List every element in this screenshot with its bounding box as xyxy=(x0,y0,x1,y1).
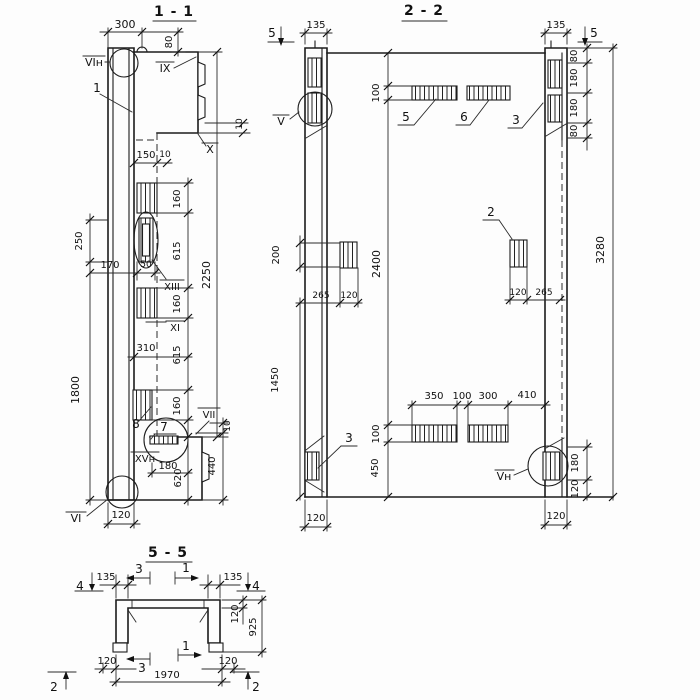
callout-xiii: XIII xyxy=(164,282,180,293)
callout-xi: XI xyxy=(170,323,180,334)
embed-bar-5 xyxy=(412,86,457,100)
dim-chain-80b: 80 xyxy=(569,125,580,138)
dim-top-drop: 80 xyxy=(164,36,175,49)
dim-chain-180a: 180 xyxy=(569,68,580,87)
embed-block-8 xyxy=(133,390,152,420)
callout-panel-1: 1 xyxy=(93,81,101,95)
dim-50: 50 xyxy=(140,260,152,270)
drawing-sheet: 1 - 1 xyxy=(0,0,700,700)
cut-marker-3-top: 3 xyxy=(135,562,143,576)
callout-7: 7 xyxy=(160,420,168,434)
leg-foot xyxy=(113,643,127,652)
embed-block xyxy=(340,242,357,268)
embed-block xyxy=(308,58,322,87)
dim-120-bottom-right: 120 xyxy=(218,656,237,667)
callout-xvn: XVн xyxy=(135,454,155,465)
dim-120-bottom: 120 xyxy=(111,510,130,521)
dim-440: 440 xyxy=(207,456,218,475)
dim-chain-160b: 160 xyxy=(172,294,183,313)
callout-2: 2 xyxy=(487,205,495,219)
embed-bar-6 xyxy=(467,86,510,100)
dim-10b: 10 xyxy=(235,118,245,130)
callout-3-top: 3 xyxy=(512,113,520,127)
dim-120-left: 120 xyxy=(340,291,357,301)
dim-1800: 1800 xyxy=(69,376,82,404)
keyway-notch xyxy=(198,62,205,87)
dim-1970: 1970 xyxy=(154,670,179,681)
section-title: 2 - 2 xyxy=(404,3,444,19)
dim-120-slab: 120 xyxy=(230,604,241,623)
dim-2250: 2250 xyxy=(200,261,213,289)
dim-chain-615a: 615 xyxy=(172,241,183,260)
dim-100-bottom: 100 xyxy=(371,424,382,443)
section-title: 1 - 1 xyxy=(154,4,194,20)
section-5-5: 5 - 5 4 4 135 135 3 1 120 925 120 1970 1… xyxy=(48,545,266,694)
dim-chain-615b: 615 xyxy=(172,345,183,364)
embed-bar xyxy=(412,425,457,442)
callout-vii: VII xyxy=(203,410,216,421)
dim-150: 150 xyxy=(136,150,155,161)
embed-block xyxy=(548,95,562,122)
section-2-2: 2 - 2 5 5 xyxy=(268,3,617,531)
dim-100-span: 100 xyxy=(452,391,471,402)
engineering-drawing: 1 - 1 xyxy=(0,0,700,700)
rib-outline xyxy=(108,48,134,500)
cut-marker-5-left: 5 xyxy=(268,26,276,40)
dim-620: 620 xyxy=(173,468,184,487)
dim-135-right: 135 xyxy=(223,572,242,583)
dim-120-bottom-right: 120 xyxy=(546,511,565,522)
dim-1450: 1450 xyxy=(270,367,281,392)
dim-135-left: 135 xyxy=(96,572,115,583)
dim-135-right: 135 xyxy=(546,20,565,31)
cut-marker-1-top: 1 xyxy=(182,561,190,575)
dim-310: 310 xyxy=(136,343,155,354)
dim-chain-80a: 80 xyxy=(569,50,580,63)
embed-block xyxy=(137,288,157,318)
callout-vin: VIн xyxy=(85,56,103,69)
keyway-notch xyxy=(198,95,205,120)
embed-block-v xyxy=(308,93,322,123)
cut-marker-1-bottom: 1 xyxy=(182,639,190,653)
dim-chain-180b: 180 xyxy=(569,98,580,117)
callout-ix: IX xyxy=(160,62,171,75)
dim-2400: 2400 xyxy=(370,250,383,278)
section-1-1: 1 - 1 xyxy=(66,4,250,528)
dim-120-bottom-left: 120 xyxy=(306,513,325,524)
dim-265-right: 265 xyxy=(535,288,552,298)
dim-410: 410 xyxy=(517,390,536,401)
dim-3280: 3280 xyxy=(594,236,607,264)
callout-vn: Vн xyxy=(497,470,512,483)
dim-180-br: 180 xyxy=(570,453,581,472)
embed-block xyxy=(137,183,157,213)
callout-bar-6: 6 xyxy=(460,110,468,124)
cut-marker-2-left: 2 xyxy=(50,680,58,694)
dim-10c: 10 xyxy=(223,420,233,432)
leg-foot xyxy=(209,643,223,652)
embed-block-2 xyxy=(510,240,527,267)
embed-bar xyxy=(468,425,508,442)
dimension-ticks-55 xyxy=(99,581,266,686)
dim-100-top: 100 xyxy=(371,83,382,102)
dim-top-width: 300 xyxy=(115,18,136,31)
cut-marker-2-right: 2 xyxy=(252,680,260,694)
section-title: 5 - 5 xyxy=(148,545,188,561)
embed-block-3 xyxy=(305,452,319,480)
callout-3-bottom: 3 xyxy=(345,431,353,445)
dim-300-span: 300 xyxy=(478,391,497,402)
cut-marker-3-bottom: 3 xyxy=(138,661,146,675)
dim-200: 200 xyxy=(271,245,282,264)
callout-8: 8 xyxy=(132,417,140,431)
callout-v: V xyxy=(277,115,285,128)
detail-7-plate xyxy=(150,436,178,444)
embed-block-vn xyxy=(543,452,560,480)
dim-120-br: 120 xyxy=(570,479,581,498)
dim-450: 450 xyxy=(370,458,381,477)
dim-265-left: 265 xyxy=(312,291,329,301)
dim-250: 250 xyxy=(74,231,85,250)
callout-bar-5: 5 xyxy=(402,110,410,124)
dim-10a: 10 xyxy=(159,150,171,160)
callout-x: X xyxy=(206,143,214,156)
dim-135-left: 135 xyxy=(306,20,325,31)
callout-vi: VI xyxy=(71,512,82,525)
cut-marker-5-right: 5 xyxy=(590,26,598,40)
dim-chain-160c: 160 xyxy=(172,396,183,415)
dim-120-right: 120 xyxy=(509,288,526,298)
dim-350: 350 xyxy=(424,391,443,402)
dim-170: 170 xyxy=(100,260,119,271)
dim-925: 925 xyxy=(248,617,259,636)
embed-block xyxy=(548,60,562,88)
dim-chain-160a: 160 xyxy=(172,189,183,208)
